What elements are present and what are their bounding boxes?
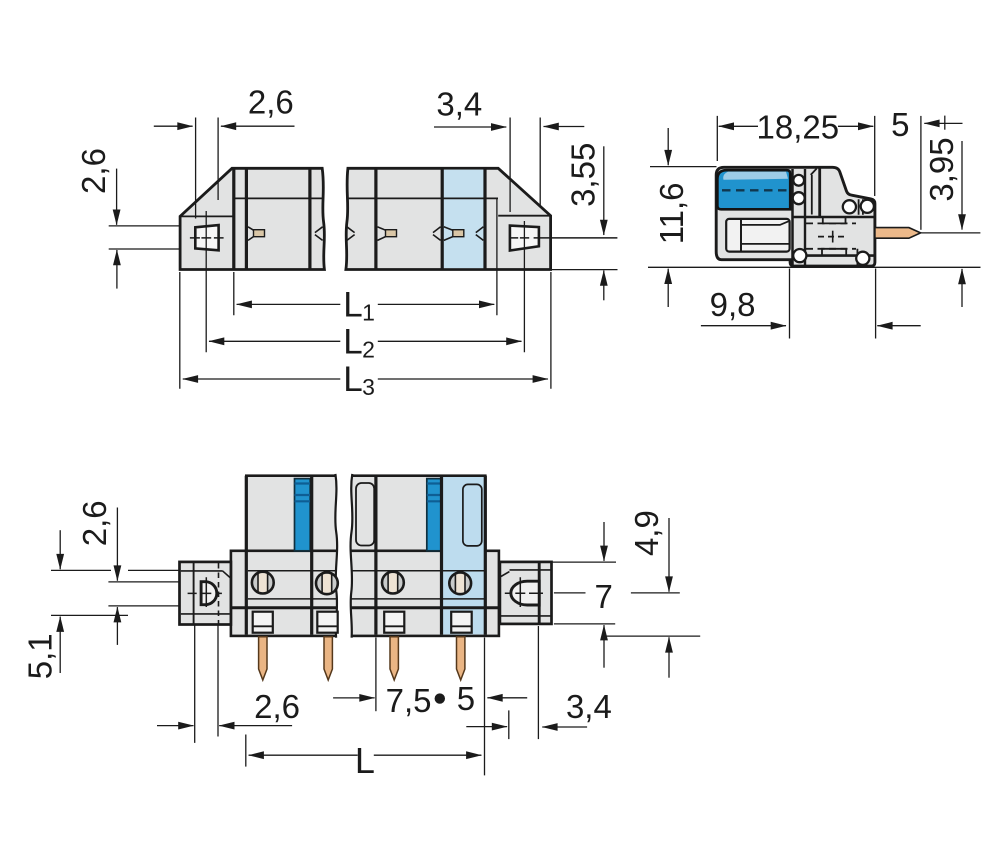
svg-text:7: 7 <box>595 578 613 615</box>
svg-text:3,95: 3,95 <box>923 137 960 201</box>
svg-text:2,6: 2,6 <box>75 148 112 194</box>
svg-text:3,4: 3,4 <box>566 688 612 725</box>
svg-text:9,8: 9,8 <box>710 286 756 323</box>
svg-text:L: L <box>343 322 362 361</box>
svg-text:5: 5 <box>457 680 475 717</box>
svg-text:2,6: 2,6 <box>254 688 300 725</box>
svg-text:3: 3 <box>362 374 375 400</box>
svg-text:3,55: 3,55 <box>564 143 601 207</box>
svg-text:L: L <box>355 740 375 781</box>
svg-text:5: 5 <box>891 106 909 143</box>
svg-text:L: L <box>343 360 362 399</box>
svg-text:2: 2 <box>362 336 375 362</box>
svg-text:7,5: 7,5 <box>386 682 432 719</box>
svg-text:11,6: 11,6 <box>653 183 690 245</box>
svg-text:2,6: 2,6 <box>76 500 113 546</box>
svg-text:4,9: 4,9 <box>628 510 665 556</box>
svg-text:5,1: 5,1 <box>22 633 59 679</box>
svg-text:L: L <box>343 285 362 324</box>
svg-text:1: 1 <box>362 299 375 325</box>
svg-text:2,6: 2,6 <box>248 84 294 121</box>
svg-text:3,4: 3,4 <box>436 86 482 123</box>
svg-text:18,25: 18,25 <box>757 108 840 145</box>
